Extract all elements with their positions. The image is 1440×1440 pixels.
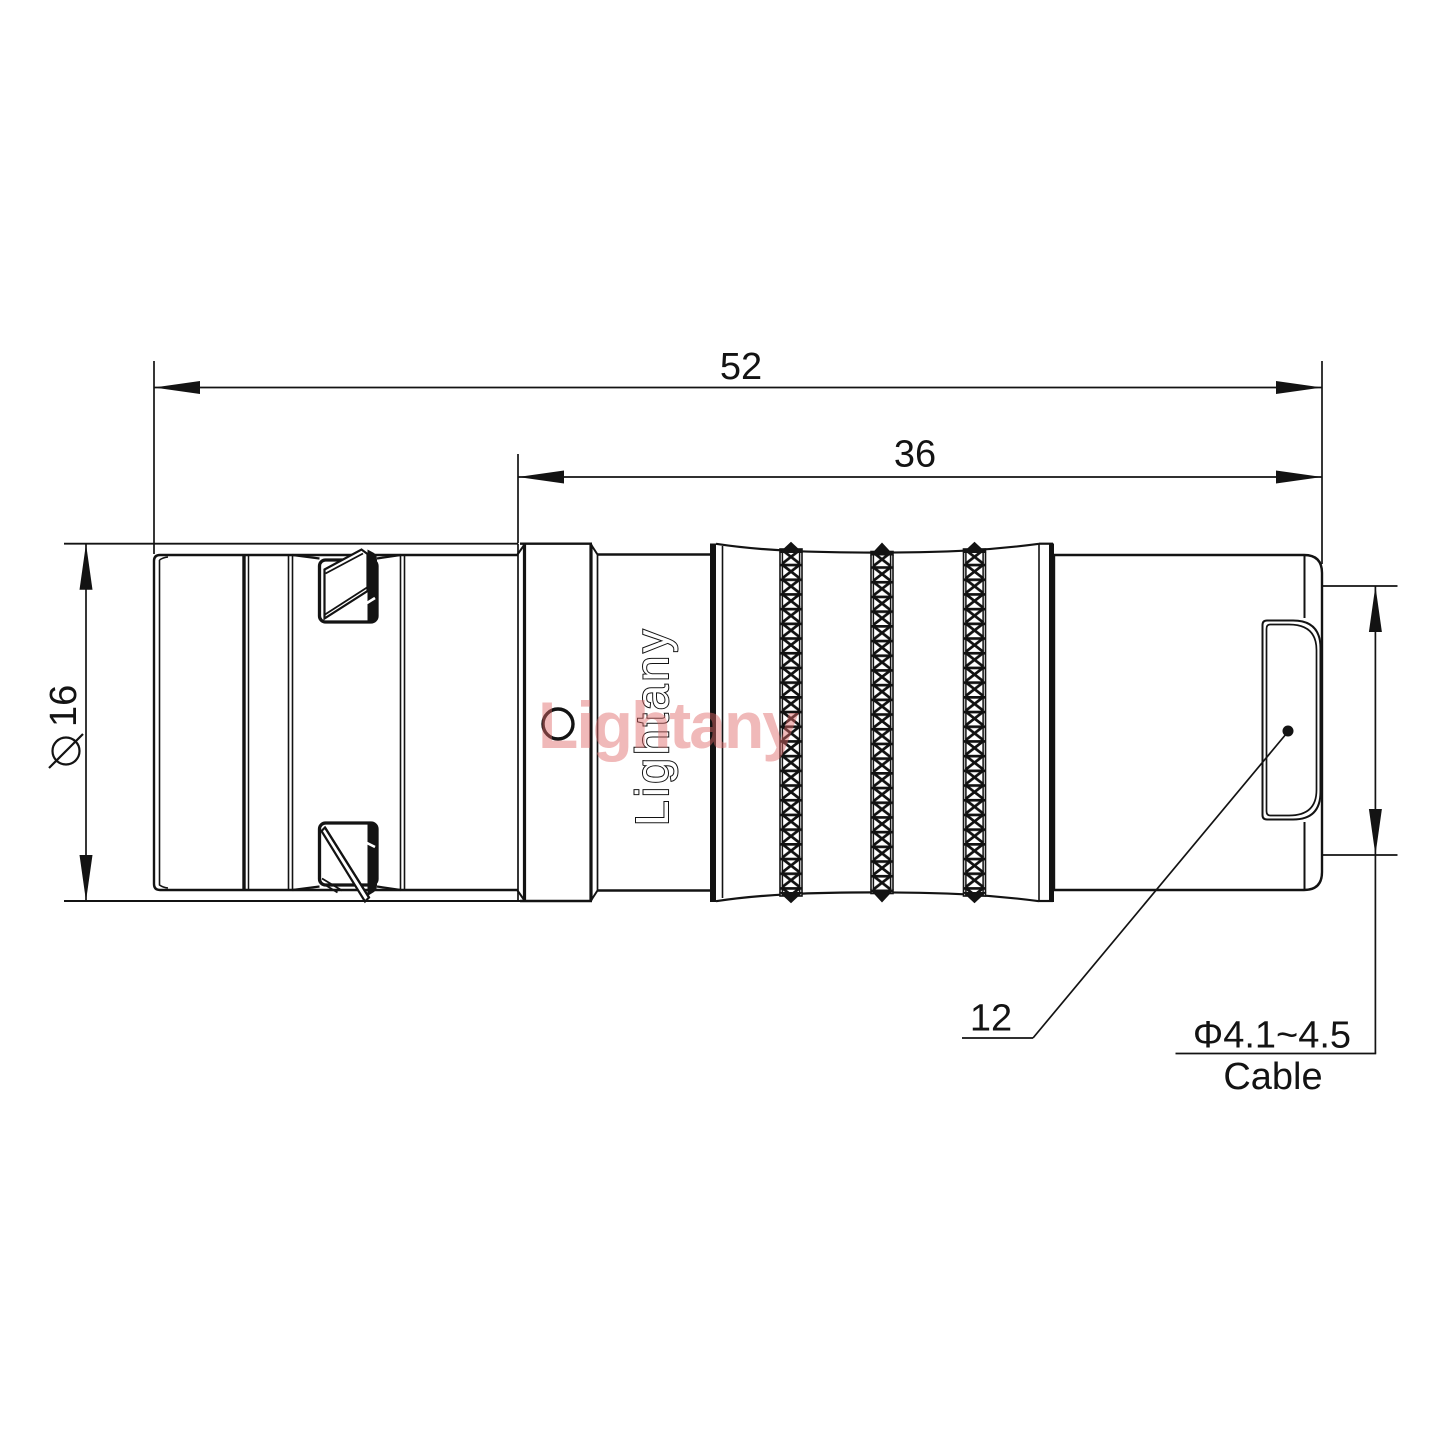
svg-text:16: 16 xyxy=(43,685,85,727)
svg-text:52: 52 xyxy=(720,346,762,388)
svg-text:12: 12 xyxy=(970,998,1012,1040)
svg-text:36: 36 xyxy=(894,434,936,476)
svg-text:Φ4.1~4.5: Φ4.1~4.5 xyxy=(1193,1015,1351,1057)
svg-text:Cable: Cable xyxy=(1223,1056,1322,1098)
svg-text:Lightany: Lightany xyxy=(538,688,799,762)
